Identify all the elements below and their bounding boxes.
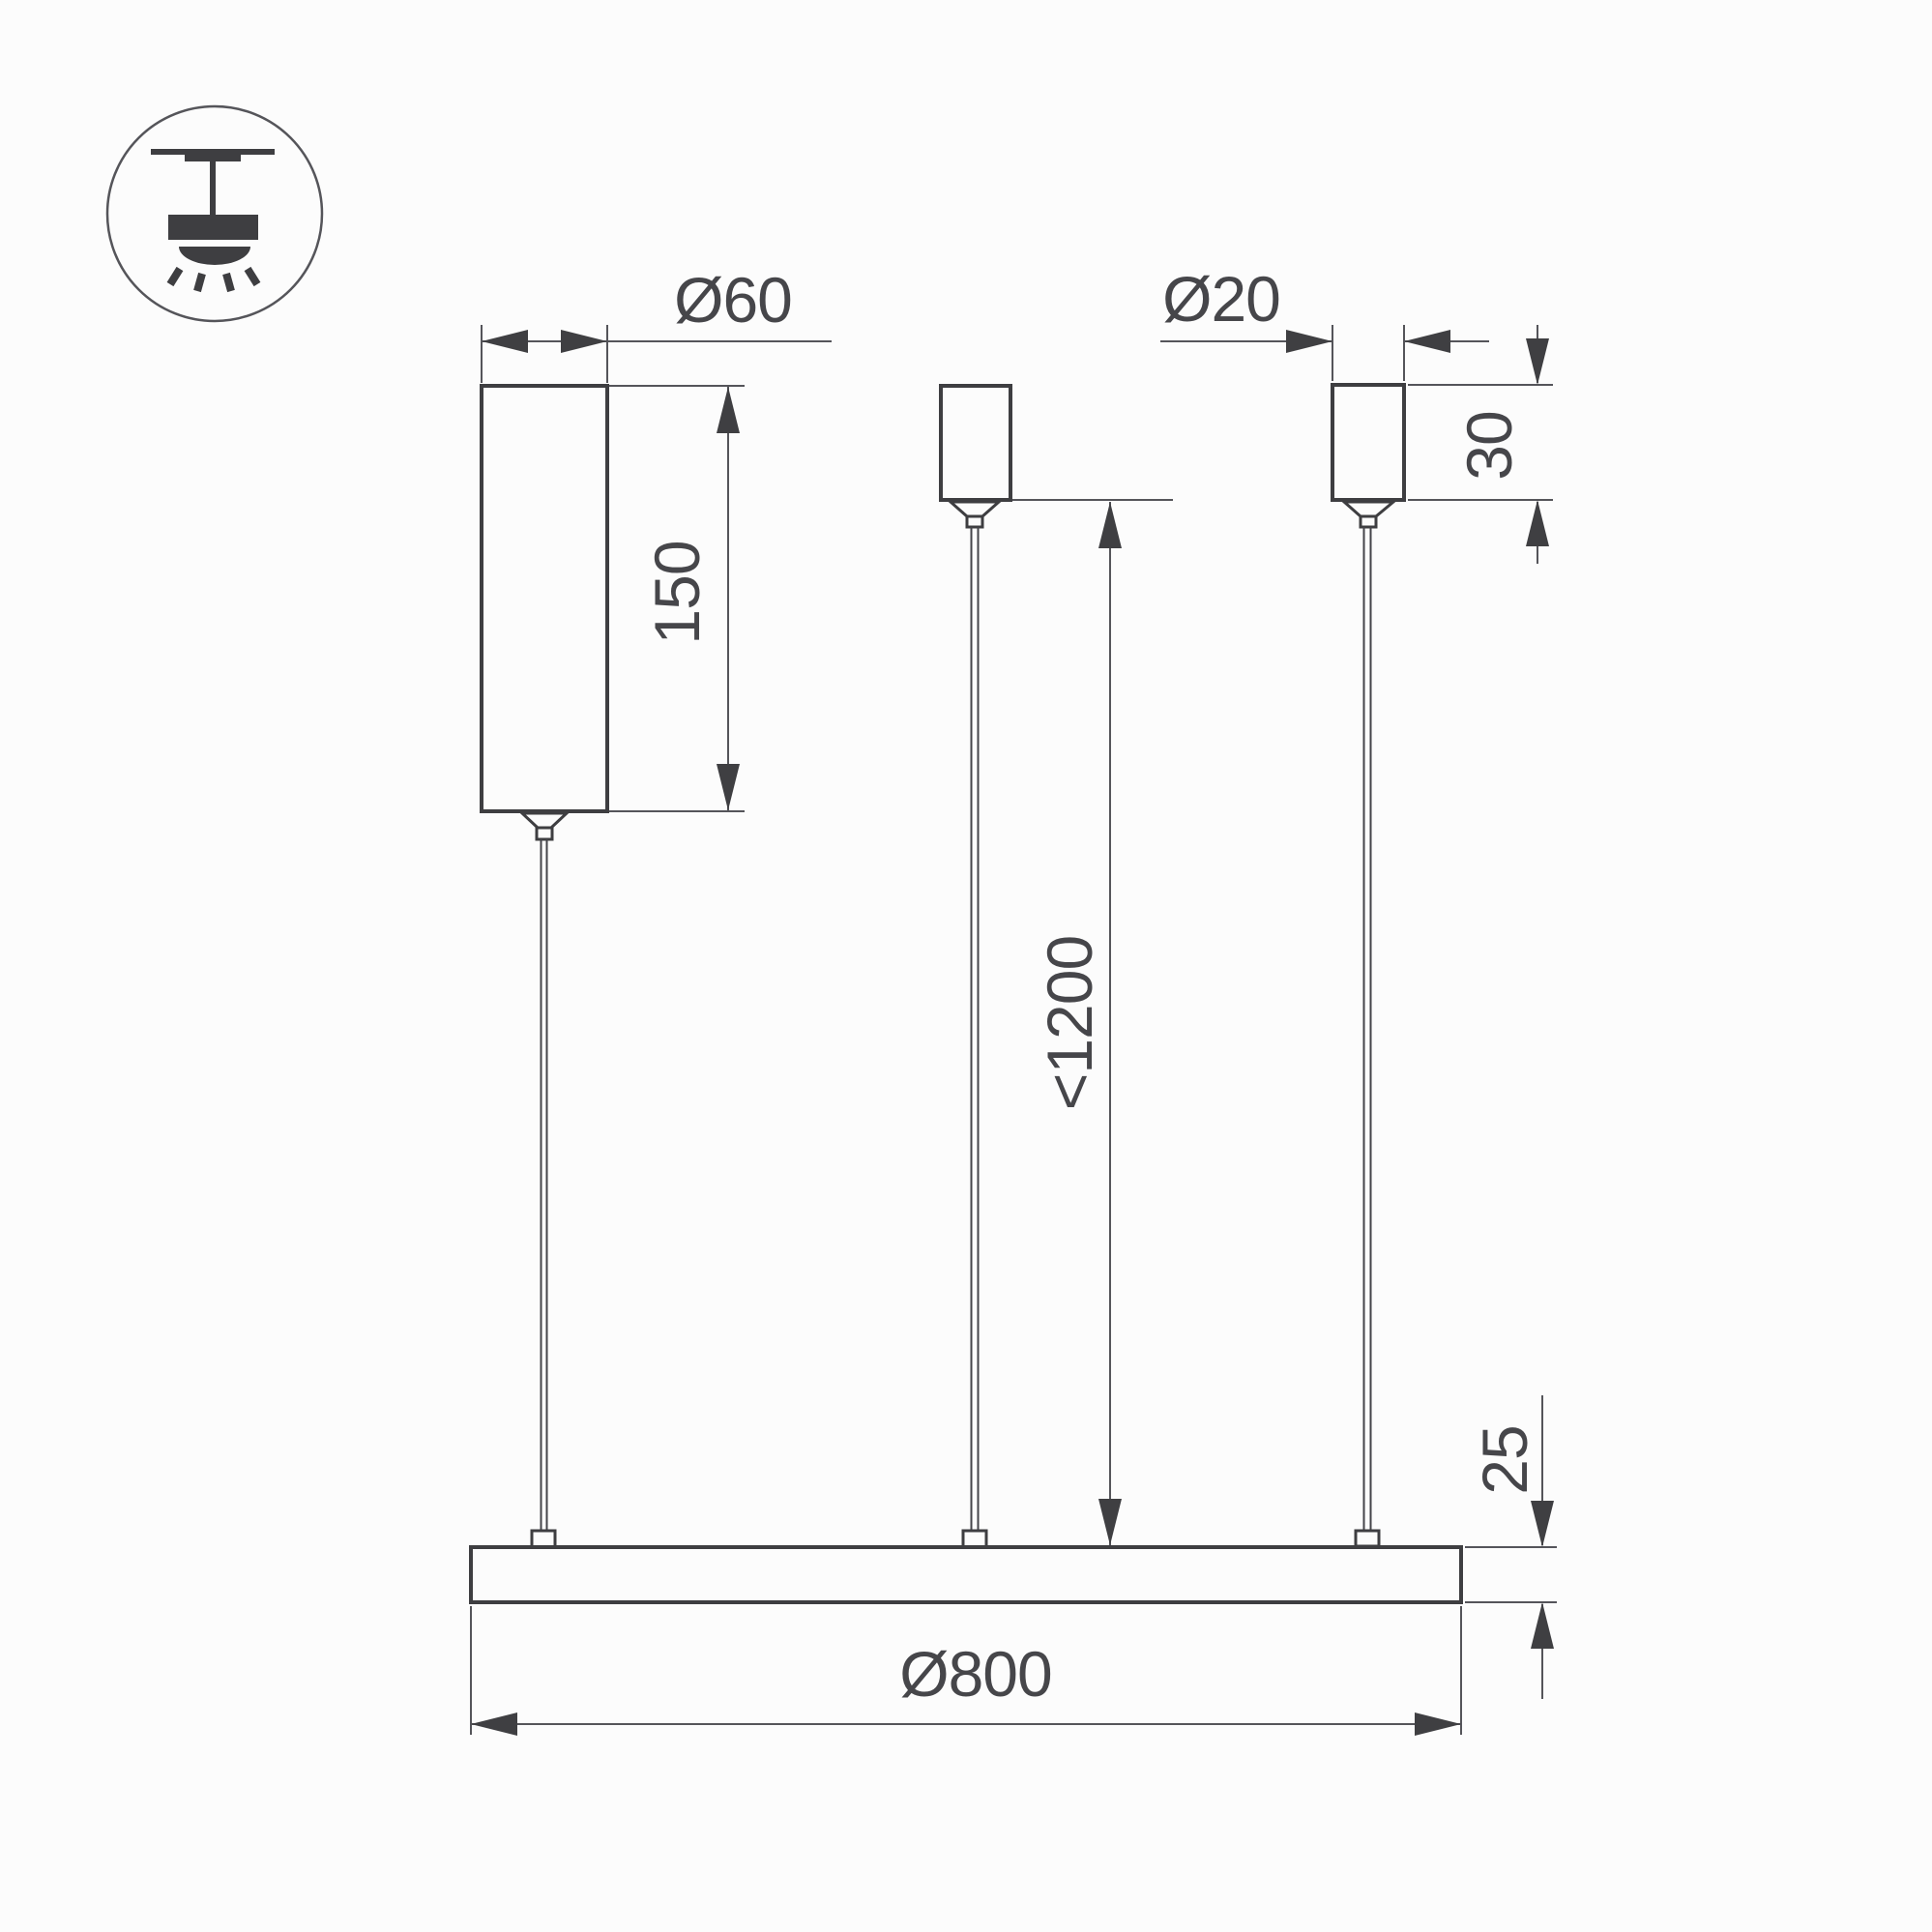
right-cable-funnel bbox=[1344, 502, 1393, 516]
ring-profile-body bbox=[471, 1547, 1461, 1602]
middle-cable-grip bbox=[967, 516, 982, 527]
arrowhead bbox=[1531, 1602, 1554, 1649]
canopy-cable-grip bbox=[537, 828, 552, 839]
icon-stem bbox=[210, 161, 216, 215]
arrowhead bbox=[471, 1712, 517, 1736]
arrowhead bbox=[1098, 502, 1122, 548]
technical-drawing-page: Ø60 150 Ø20 30 <1200 25 Ø800 bbox=[0, 0, 1932, 1932]
dim-label-canopy-height: 150 bbox=[645, 541, 709, 644]
cable-middle bbox=[972, 527, 979, 1531]
cable-right-bottom-connector bbox=[1356, 1531, 1379, 1546]
arrowhead bbox=[482, 330, 528, 353]
cable-left-bottom-connector bbox=[532, 1531, 555, 1547]
arrowhead bbox=[1415, 1712, 1461, 1736]
dim-label-fixture-diameter: Ø800 bbox=[899, 1642, 1051, 1706]
middle-suspender-assembly bbox=[941, 386, 1010, 1547]
arrowhead bbox=[1526, 500, 1549, 546]
canopy-assembly bbox=[482, 386, 607, 1547]
icon-lamp-body bbox=[168, 215, 258, 240]
dim-label-canopy-diameter: Ø60 bbox=[674, 268, 792, 332]
icon-mount-plate bbox=[185, 155, 241, 161]
cable-left bbox=[542, 839, 547, 1531]
arrowhead bbox=[1531, 1501, 1554, 1547]
arrowhead bbox=[1526, 338, 1549, 385]
arrowhead bbox=[717, 764, 740, 810]
icon-ceiling-line bbox=[151, 149, 275, 155]
arrowhead bbox=[1404, 330, 1450, 353]
right-cable-grip bbox=[1361, 516, 1376, 527]
arrowhead bbox=[717, 387, 740, 433]
middle-cable-funnel bbox=[951, 502, 999, 516]
dim-label-grip-height: 30 bbox=[1457, 411, 1521, 480]
right-suspender-assembly bbox=[1332, 385, 1404, 1546]
arrowhead bbox=[561, 330, 607, 353]
canopy-cable-funnel bbox=[522, 813, 567, 828]
dim-label-profile-thickness: 25 bbox=[1473, 1425, 1537, 1494]
arrowhead bbox=[1098, 1499, 1122, 1545]
middle-suspender-body bbox=[941, 386, 1010, 500]
arrowhead bbox=[1286, 330, 1332, 353]
canopy-body bbox=[482, 386, 607, 811]
cable-right bbox=[1364, 527, 1371, 1531]
right-suspender-body bbox=[1332, 385, 1404, 500]
icon-light-rays bbox=[170, 269, 257, 291]
dim-label-suspension-length: <1200 bbox=[1038, 936, 1101, 1110]
dim-label-grip-diameter: Ø20 bbox=[1162, 267, 1280, 331]
icon-light-dome bbox=[179, 247, 250, 265]
pendant-light-icon bbox=[107, 106, 322, 321]
cable-middle-bottom-connector bbox=[963, 1531, 986, 1547]
